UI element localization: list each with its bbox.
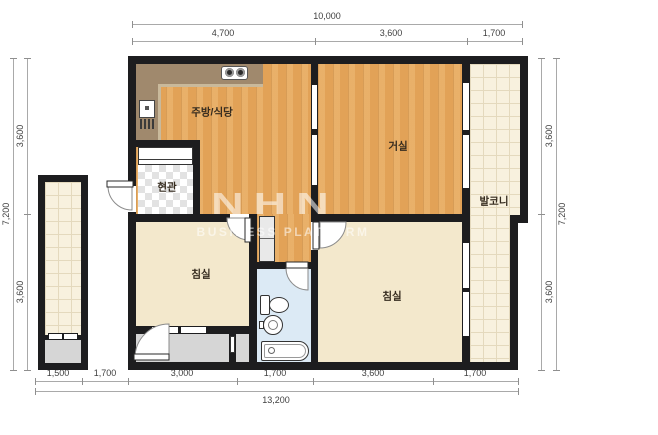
room-label-entrance: 현관 — [157, 180, 176, 195]
wall — [311, 250, 318, 362]
dim-tick — [24, 214, 31, 215]
wall — [128, 362, 518, 370]
wall — [520, 56, 528, 222]
toilet-bowl-icon — [269, 297, 289, 313]
dim-top-seg2: 3,600 — [380, 28, 403, 38]
dim-left-seg2: 3,600 — [15, 281, 25, 304]
dim-bottom-seg2: 1,700 — [94, 368, 117, 378]
window — [462, 134, 470, 189]
dim-tick — [132, 38, 133, 45]
dim-tick — [313, 378, 314, 385]
dim-tick — [35, 388, 36, 395]
wall — [193, 140, 200, 221]
wall — [128, 56, 136, 186]
wall — [128, 140, 200, 147]
dim-tick — [518, 388, 519, 395]
dim-tick — [82, 378, 83, 385]
dim-line — [35, 381, 518, 382]
window — [311, 134, 318, 186]
dim-right-seg1: 3,600 — [544, 125, 554, 148]
utility-divider-door — [230, 336, 235, 353]
hallway-closet — [259, 216, 275, 262]
window — [311, 84, 318, 130]
dim-tick — [315, 38, 316, 45]
watermark-logo: NHN — [211, 186, 339, 222]
dim-tick — [128, 378, 129, 385]
dim-top-total: 10,000 — [313, 11, 341, 21]
wall — [128, 212, 136, 370]
watermark-text: BUSINESS PLATFORM — [197, 225, 370, 239]
dim-bottom-total: 13,200 — [262, 395, 290, 405]
side-balcony-floor — [45, 182, 81, 335]
room-label-bedroom-right: 침실 — [382, 289, 401, 304]
dim-line — [13, 58, 14, 370]
sink-drain-icon — [268, 320, 278, 330]
window — [151, 326, 179, 334]
floor-plan: 10,000 4,700 3,600 1,700 1,500 1,700 3,0… — [0, 0, 658, 435]
dim-tick — [553, 370, 560, 371]
dim-tick — [10, 58, 17, 59]
entrance-door-opening — [128, 186, 136, 212]
stove-burner-icon — [236, 68, 245, 77]
room-label-kitchen: 주방/식당 — [191, 105, 233, 120]
dim-tick — [538, 370, 545, 371]
dim-tick — [35, 378, 36, 385]
window — [462, 82, 470, 131]
window — [48, 333, 63, 340]
room-label-balcony: 발코니 — [480, 194, 509, 209]
dim-tick — [10, 370, 17, 371]
dim-left-total: 7,200 — [1, 203, 11, 226]
balcony-floor-upper — [470, 64, 520, 215]
dim-line — [132, 24, 522, 25]
window — [63, 333, 78, 340]
entrance-closet — [138, 147, 193, 165]
window — [462, 242, 470, 289]
dim-top-seg3: 1,700 — [483, 28, 506, 38]
bathtub-drain-icon — [268, 347, 275, 354]
balcony-floor-lower — [470, 215, 510, 362]
sink-tap-icon — [259, 321, 264, 329]
dim-tick — [522, 21, 523, 28]
wall — [249, 262, 286, 269]
window — [462, 291, 470, 337]
wall — [510, 215, 528, 223]
dim-line — [132, 41, 522, 42]
room-label-bedroom-left: 침실 — [191, 267, 210, 282]
dim-tick — [132, 21, 133, 28]
dim-tick — [538, 214, 545, 215]
radiator-icon — [140, 119, 154, 129]
wall — [308, 262, 311, 269]
dim-right-total: 7,200 — [557, 203, 567, 226]
dim-right-seg2: 3,600 — [544, 281, 554, 304]
refrigerator-handle-icon — [145, 106, 149, 110]
side-balcony-utility — [45, 340, 81, 363]
dim-tick — [24, 370, 31, 371]
wall — [510, 223, 518, 370]
dim-tick — [24, 58, 31, 59]
dim-tick — [522, 38, 523, 45]
dim-tick — [433, 378, 434, 385]
dim-tick — [518, 378, 519, 385]
bathroom-door-leaf — [286, 262, 308, 268]
dim-line — [35, 391, 518, 392]
dim-left-seg1: 3,600 — [15, 125, 25, 148]
wall — [128, 56, 528, 64]
stove-burner-icon — [225, 68, 234, 77]
dim-tick — [467, 38, 468, 45]
dim-tick — [538, 58, 545, 59]
window — [180, 326, 207, 334]
room-label-living: 거실 — [388, 139, 407, 154]
dim-tick — [237, 378, 238, 385]
dim-tick — [553, 58, 560, 59]
dim-top-seg1: 4,700 — [212, 28, 235, 38]
